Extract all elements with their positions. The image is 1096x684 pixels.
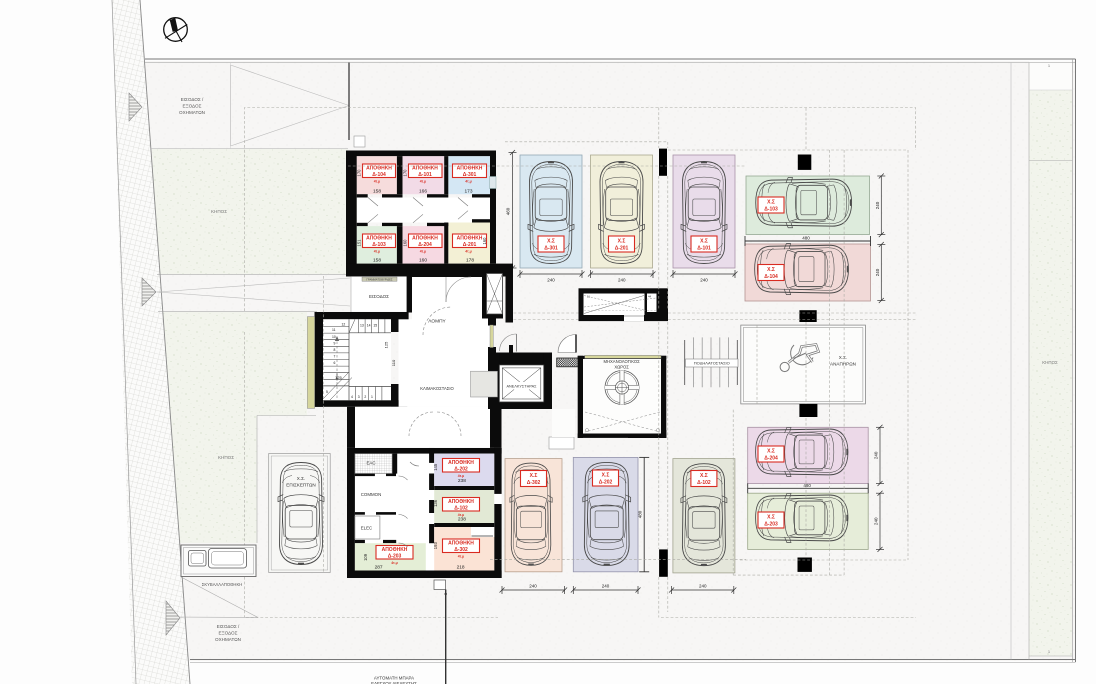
svg-text:ΑΠΟΘΗΚΗ: ΑΠΟΘΗΚΗ (457, 166, 483, 172)
svg-text:170: 170 (357, 169, 362, 177)
svg-text:Δ-302: Δ-302 (454, 547, 468, 553)
svg-text:170: 170 (402, 169, 407, 177)
svg-text:ELEC: ELEC (361, 526, 372, 531)
svg-text:Χ.Σ: Χ.Σ (602, 473, 610, 479)
svg-text:ΑΠΟΘΗΚΗ: ΑΠΟΘΗΚΗ (366, 236, 392, 242)
svg-text:Δ-103: Δ-103 (372, 242, 386, 248)
svg-text:480: 480 (803, 483, 811, 488)
svg-text:Χ.Σ: Χ.Σ (700, 239, 708, 245)
svg-text:7: 7 (334, 355, 336, 359)
svg-text:4τ.μ: 4τ.μ (458, 555, 464, 559)
svg-text:Δ-302: Δ-302 (527, 480, 541, 486)
svg-text:4τ.μ: 4τ.μ (458, 513, 464, 517)
svg-text:44: 44 (648, 295, 652, 299)
svg-text:ΑΠΟΘΗΚΗ: ΑΠΟΘΗΚΗ (366, 166, 392, 172)
svg-text:Δ-104: Δ-104 (764, 274, 778, 280)
svg-text:1: 1 (371, 395, 373, 399)
svg-text:Δ-203: Δ-203 (388, 554, 402, 560)
svg-text:240: 240 (547, 278, 555, 283)
svg-text:ΚΗΠΟΣ: ΚΗΠΟΣ (1042, 360, 1058, 365)
svg-text:2: 2 (364, 395, 366, 399)
svg-text:ΚΗΠΟΣ: ΚΗΠΟΣ (218, 455, 234, 460)
svg-text:COMMON: COMMON (361, 492, 382, 497)
svg-text:13: 13 (360, 324, 364, 328)
svg-text:ΑΥΤΟΜΑΤΗ ΜΠΑΡΑ: ΑΥΤΟΜΑΤΗ ΜΠΑΡΑ (374, 676, 414, 681)
svg-text:Χ.Σ: Χ.Σ (618, 239, 626, 245)
svg-text:4τ.μ: 4τ.μ (465, 250, 471, 254)
svg-text:Δ-104: Δ-104 (372, 172, 386, 178)
svg-text:Χ.Σ: Χ.Σ (767, 200, 775, 206)
svg-text:240: 240 (700, 278, 708, 283)
svg-text:110: 110 (391, 359, 396, 366)
svg-text:160: 160 (402, 239, 407, 247)
svg-text:460: 460 (506, 207, 511, 215)
svg-text:Χ.Σ.: Χ.Σ. (839, 355, 847, 360)
svg-text:Δ-103: Δ-103 (764, 207, 778, 213)
svg-text:ΚΗΠΟΣ: ΚΗΠΟΣ (211, 209, 227, 214)
svg-text:ΠΟΔΗΛΑΤΟΣΤΑΣΙΟ: ΠΟΔΗΛΑΤΟΣΤΑΣΙΟ (694, 361, 730, 366)
svg-text:136: 136 (433, 499, 438, 507)
svg-text:480: 480 (802, 236, 810, 241)
svg-text:9: 9 (334, 341, 336, 345)
svg-text:Δ-204: Δ-204 (764, 456, 778, 462)
svg-text:ΑΠΟΘΗΚΗ: ΑΠΟΘΗΚΗ (448, 460, 474, 466)
svg-text:4τ.μ: 4τ.μ (420, 180, 426, 184)
svg-text:Δ-202: Δ-202 (599, 480, 613, 486)
svg-text:Δ-201: Δ-201 (463, 242, 477, 248)
svg-text:4τ.μ: 4τ.μ (374, 180, 380, 184)
svg-text:Δ-101: Δ-101 (418, 172, 432, 178)
svg-text:ΣΚΥΒΑΛΛΑΠΟΘΗΚΗ: ΣΚΥΒΑΛΛΑΠΟΘΗΚΗ (202, 582, 243, 587)
svg-text:Χ.Σ: Χ.Σ (767, 515, 775, 521)
svg-text:Χ.Σ: Χ.Σ (700, 473, 708, 479)
svg-text:145: 145 (433, 463, 438, 471)
svg-text:11: 11 (332, 328, 336, 332)
svg-text:Χ.Σ: Χ.Σ (767, 449, 775, 455)
svg-text:Δ-301: Δ-301 (463, 172, 477, 178)
svg-text:151: 151 (357, 239, 362, 247)
svg-text:ΑΠΟΘΗΚΗ: ΑΠΟΘΗΚΗ (412, 166, 438, 172)
svg-text:ΕΙΣΟΔΟΣ /: ΕΙΣΟΔΟΣ / (181, 97, 204, 102)
svg-text:ΕΙΣΟΔΟΣ: ΕΙΣΟΔΟΣ (369, 294, 389, 299)
svg-text:4: 4 (351, 395, 353, 399)
svg-text:240: 240 (618, 278, 626, 283)
svg-text:ΧΩΡΟΣ: ΧΩΡΟΣ (614, 365, 629, 370)
svg-text:166: 166 (419, 189, 427, 195)
svg-text:ΛΟΜΠΥ: ΛΟΜΠΥ (428, 319, 446, 325)
svg-text:125: 125 (335, 375, 342, 380)
svg-text:ΑΝΕΛΚΥΣΤΗΡΑΣ: ΑΝΕΛΚΥΣΤΗΡΑΣ (507, 384, 538, 388)
svg-text:240: 240 (874, 517, 879, 525)
svg-text:12: 12 (342, 323, 346, 327)
svg-text:ΕΠΙΣΚΕΠΤΩΝ: ΕΠΙΣΚΕΠΤΩΝ (286, 483, 315, 488)
svg-text:240: 240 (602, 584, 610, 589)
svg-text:Δ-204: Δ-204 (418, 242, 432, 248)
svg-text:238: 238 (458, 478, 466, 484)
svg-text:Δ-101: Δ-101 (697, 246, 711, 252)
svg-text:10: 10 (332, 335, 336, 339)
svg-text:8: 8 (334, 348, 336, 352)
svg-text:ΑΠΟΘΗΚΗ: ΑΠΟΘΗΚΗ (412, 236, 438, 242)
svg-text:ΑΠΟΘΗΚΗ: ΑΠΟΘΗΚΗ (382, 547, 408, 553)
svg-text:109: 109 (363, 553, 368, 561)
svg-text:ΑΠΟΘΗΚΗ: ΑΠΟΘΗΚΗ (448, 541, 474, 547)
svg-text:Χ.Σ: Χ.Σ (767, 267, 775, 273)
svg-text:4τ.μ: 4τ.μ (465, 180, 471, 184)
svg-text:178: 178 (466, 258, 474, 264)
svg-text:ΑΠΟΘΗΚΗ: ΑΠΟΘΗΚΗ (448, 499, 474, 505)
svg-text:ΕΙΣΟΔΟΣ /: ΕΙΣΟΔΟΣ / (217, 624, 240, 629)
svg-text:ΕΞΟΔΟΣ: ΕΞΟΔΟΣ (183, 104, 202, 109)
svg-text:ΓΡΑΜΜΑΤΟΘΥΡΙΔΕΣ: ΓΡΑΜΜΑΤΟΘΥΡΙΔΕΣ (366, 278, 393, 282)
svg-text:238: 238 (458, 517, 466, 523)
svg-text:ΟΧΗΜΑΤΩΝ: ΟΧΗΜΑΤΩΝ (179, 110, 205, 115)
svg-text:240: 240 (875, 201, 880, 209)
svg-text:ΚΛΙΜΑΚΟΣΤΑΣΙΟ: ΚΛΙΜΑΚΟΣΤΑΣΙΟ (420, 386, 454, 391)
svg-text:160: 160 (482, 237, 487, 245)
svg-text:14: 14 (367, 324, 371, 328)
svg-text:5: 5 (326, 390, 328, 394)
svg-text:ΑΠΟΘΗΚΗ: ΑΠΟΘΗΚΗ (457, 236, 483, 242)
svg-text:4τ.μ: 4τ.μ (374, 250, 380, 254)
svg-text:158: 158 (373, 258, 381, 264)
svg-text:240: 240 (529, 584, 537, 589)
svg-text:240: 240 (875, 268, 880, 276)
svg-text:158: 158 (373, 189, 381, 195)
svg-text:4τ.μ: 4τ.μ (458, 474, 464, 478)
svg-text:3: 3 (358, 395, 360, 399)
svg-text:Δ-203: Δ-203 (764, 522, 778, 528)
svg-text:Δ-102: Δ-102 (697, 480, 711, 486)
svg-text:ΟΧΗΜΑΤΩΝ: ΟΧΗΜΑΤΩΝ (215, 637, 241, 642)
svg-text:173: 173 (464, 189, 472, 195)
svg-text:ΑΝΑΠΗΡΩΝ: ΑΝΑΠΗΡΩΝ (830, 362, 856, 367)
svg-text:125: 125 (384, 341, 389, 348)
svg-text:240: 240 (699, 584, 707, 589)
svg-text:4τ.μ: 4τ.μ (420, 250, 426, 254)
svg-text:ΜΗΧΑΝΟΛΟΓΙΚΟΣ: ΜΗΧΑΝΟΛΟΓΙΚΟΣ (603, 359, 640, 364)
svg-text:287: 287 (375, 565, 383, 571)
svg-text:240: 240 (874, 451, 879, 459)
svg-text:160: 160 (419, 258, 427, 264)
svg-text:Χ.Σ: Χ.Σ (530, 473, 538, 479)
svg-text:193: 193 (433, 542, 438, 550)
svg-text:4τ.μ: 4τ.μ (391, 561, 397, 565)
svg-text:15: 15 (373, 324, 377, 328)
svg-text:Χ.Σ.: Χ.Σ. (297, 476, 305, 481)
svg-text:Χ.Σ: Χ.Σ (547, 239, 555, 245)
svg-text:Δ-201: Δ-201 (615, 246, 629, 252)
svg-text:11: 11 (587, 295, 590, 299)
svg-text:EAC: EAC (366, 461, 375, 466)
svg-text:480: 480 (638, 510, 643, 518)
svg-text:ΕΞΟΔΟΣ: ΕΞΟΔΟΣ (219, 631, 238, 636)
svg-text:Δ-202: Δ-202 (454, 467, 468, 473)
svg-text:218: 218 (457, 565, 465, 571)
svg-text:Δ-102: Δ-102 (454, 506, 468, 512)
svg-text:6: 6 (334, 361, 336, 365)
svg-text:Δ-301: Δ-301 (544, 246, 558, 252)
